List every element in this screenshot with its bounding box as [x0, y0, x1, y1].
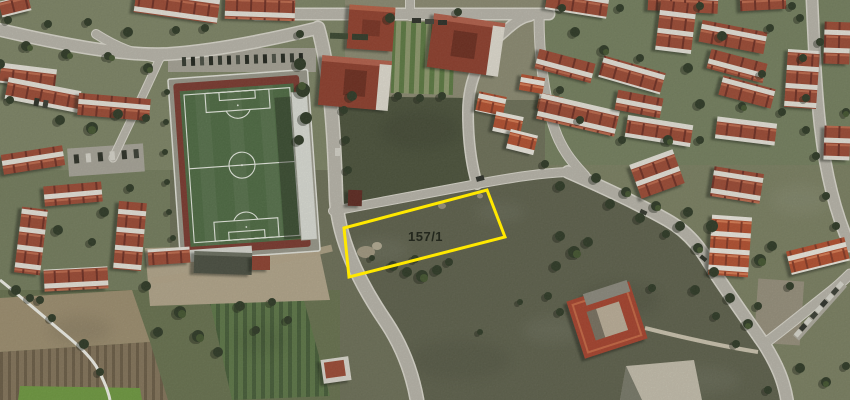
photo-grain — [0, 0, 850, 400]
aerial-map-view[interactable]: 157/1 — [0, 0, 850, 400]
aerial-map-canvas[interactable]: 157/1 — [0, 0, 850, 400]
parcel-label: 157/1 — [408, 229, 443, 244]
